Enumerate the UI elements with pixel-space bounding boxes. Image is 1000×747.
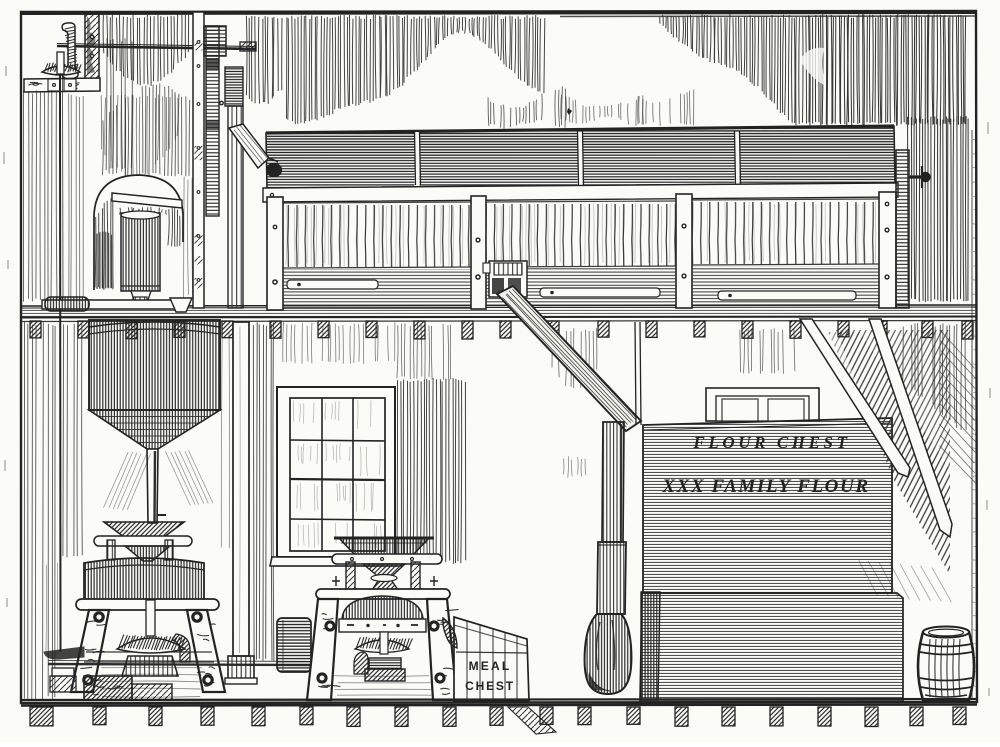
svg-text:FLOUR CHEST: FLOUR CHEST: [692, 433, 850, 452]
svg-text:CHEST: CHEST: [465, 679, 515, 693]
svg-text:XXX FAMILY FLOUR: XXX FAMILY FLOUR: [661, 476, 869, 497]
svg-text:MEAL: MEAL: [469, 659, 512, 673]
